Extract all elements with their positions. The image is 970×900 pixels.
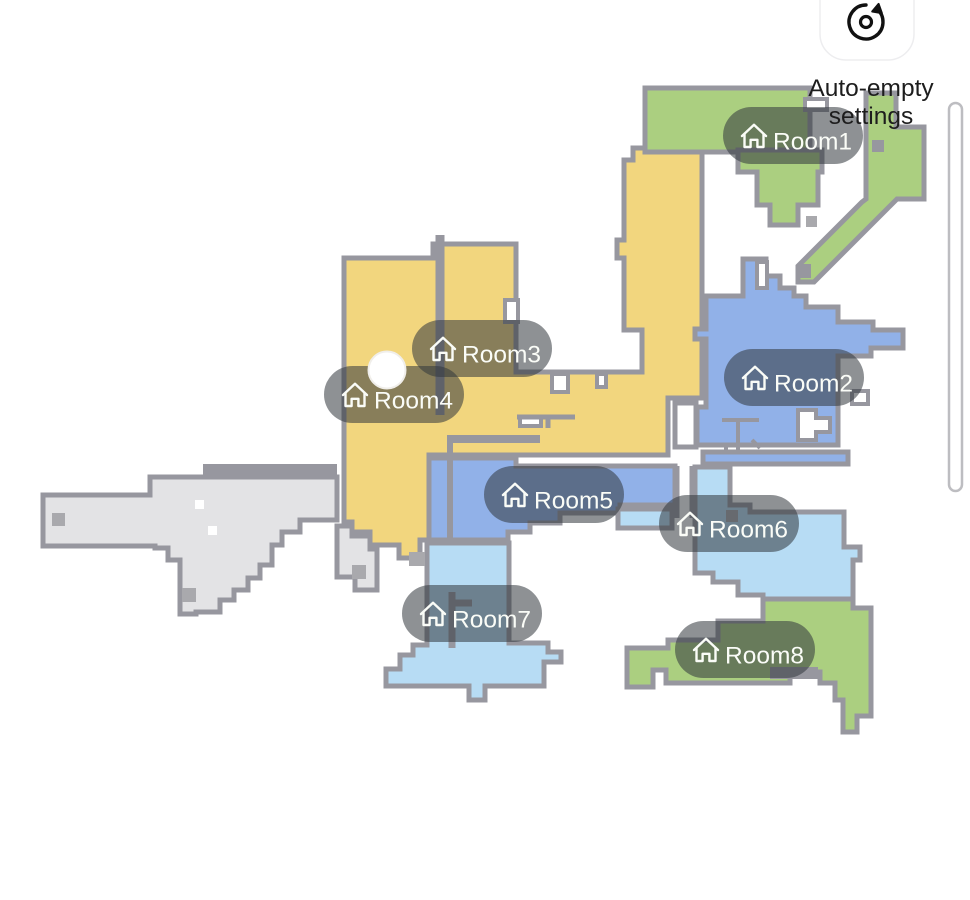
svg-text:settings: settings — [829, 103, 913, 130]
svg-text:Room7: Room7 — [452, 607, 531, 634]
svg-text:Room3: Room3 — [462, 342, 541, 369]
svg-text:Room1: Room1 — [773, 129, 852, 156]
svg-text:Room2: Room2 — [774, 371, 853, 398]
svg-text:Room6: Room6 — [709, 517, 788, 544]
svg-text:Auto-empty: Auto-empty — [808, 75, 934, 102]
svg-text:Room8: Room8 — [725, 643, 804, 670]
svg-text:Room5: Room5 — [534, 488, 613, 515]
svg-text:Room4: Room4 — [374, 388, 453, 415]
